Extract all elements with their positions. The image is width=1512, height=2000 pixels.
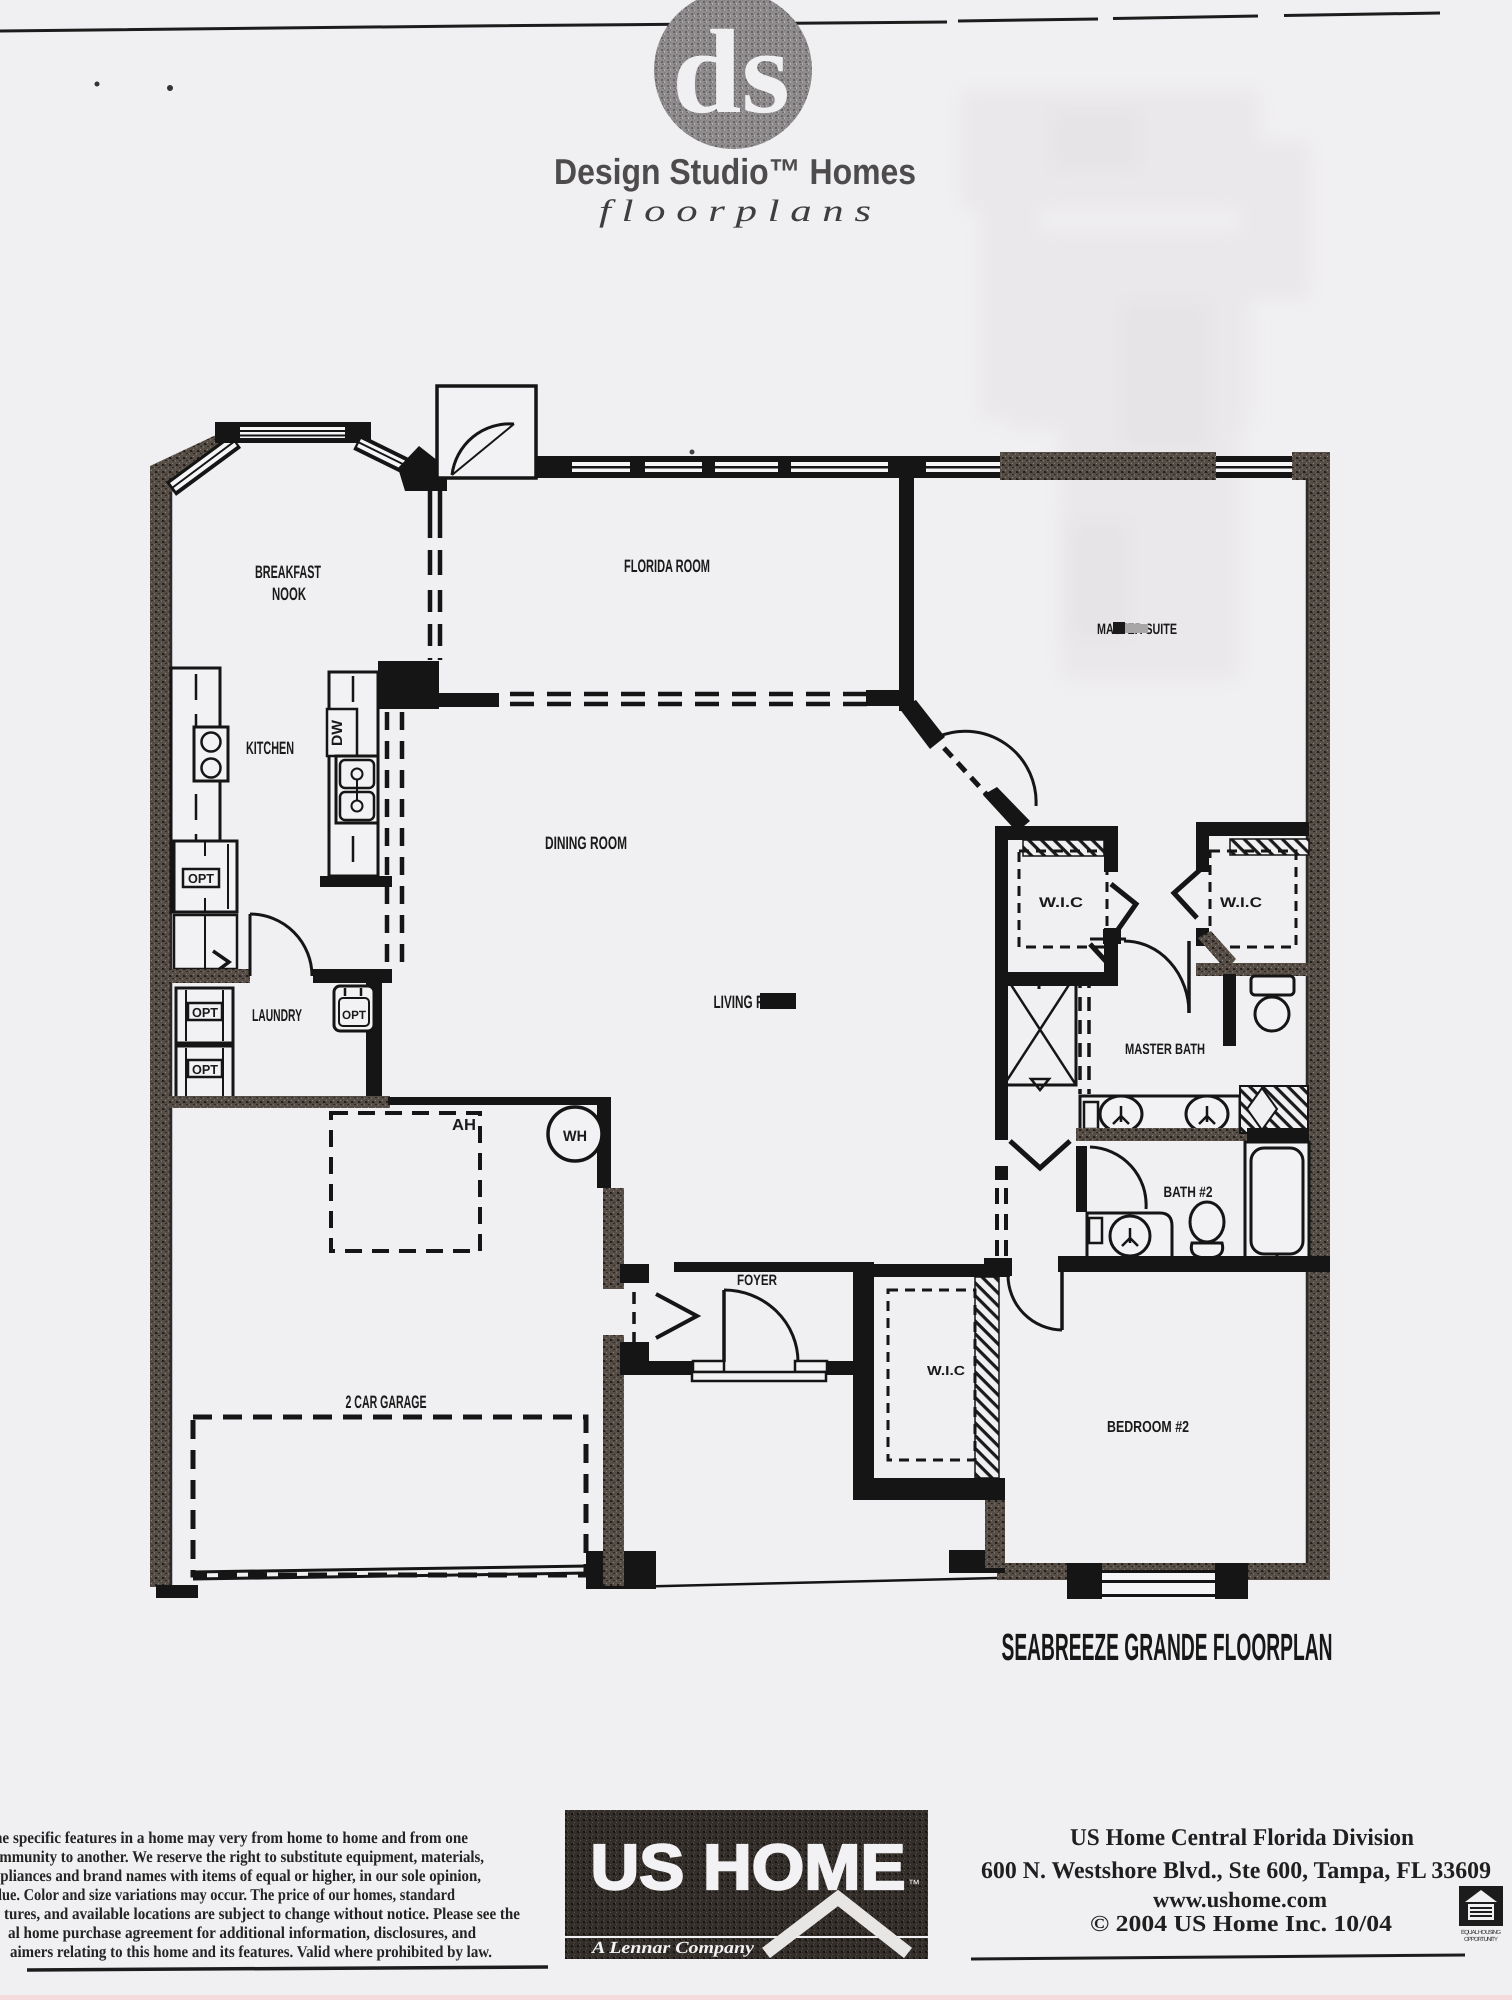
svg-text:MASTER BATH: MASTER BATH [1125,1041,1205,1058]
svg-text:DINING ROOM: DINING ROOM [545,833,627,853]
svg-text:LAUNDRY: LAUNDRY [252,1006,302,1025]
svg-text:US Home Central Florida Divisi: US Home Central Florida Division [1070,1825,1414,1851]
svg-text:© 2004 US Home Inc. 10/04: © 2004 US Home Inc. 10/04 [1090,1911,1393,1936]
svg-text:www.ushome.com: www.ushome.com [1153,1887,1327,1912]
svg-text:f l o o r p l a n s: f l o o r p l a n s [599,193,871,228]
svg-text:ommunity to another. We reserv: ommunity to another. We reserve the righ… [0,1847,484,1866]
svg-text:W.I.C: W.I.C [927,1363,966,1378]
svg-text:600 N. Westshore Blvd., Ste 60: 600 N. Westshore Blvd., Ste 600, Tampa, … [981,1858,1491,1884]
svg-text:BEDROOM #2: BEDROOM #2 [1107,1419,1189,1436]
svg-text:tures, and available locations: tures, and available locations are subje… [4,1904,520,1923]
svg-text:US HOME: US HOME [591,1831,906,1903]
svg-text:lue. Color and size variations: lue. Color and size variations may occur… [0,1885,455,1904]
svg-text:he specific features in a home: he specific features in a home may very … [0,1828,468,1847]
svg-text:NOOK: NOOK [272,584,306,604]
svg-text:SEABREEZE GRANDE FLOORPLAN: SEABREEZE GRANDE FLOORPLAN [1002,1627,1333,1669]
svg-text:2 CAR GARAGE: 2 CAR GARAGE [346,1392,427,1412]
svg-text:A Lennar Company: A Lennar Company [591,1938,755,1957]
svg-text:AH: AH [452,1117,476,1134]
svg-text:OPT: OPT [342,1008,367,1022]
svg-text:OPT: OPT [192,1062,218,1077]
svg-text:KITCHEN: KITCHEN [246,738,294,758]
svg-text:BREAKFAST: BREAKFAST [255,562,321,582]
svg-text:FOYER: FOYER [737,1272,777,1289]
svg-text:aimers relating to this home a: aimers relating to this home and its fea… [10,1942,492,1961]
svg-text:WH: WH [563,1128,587,1145]
svg-text:OPT: OPT [192,1005,218,1020]
svg-text:W.I.C: W.I.C [1039,894,1083,910]
svg-text:BATH #2: BATH #2 [1164,1184,1213,1201]
svg-text:ds: ds [672,5,790,138]
svg-text:OPPORTUNITY: OPPORTUNITY [1464,1936,1498,1943]
svg-text:EQUAL HOUSING: EQUAL HOUSING [1461,1929,1501,1936]
svg-text:ppliances and brand names with: ppliances and brand names with items of … [0,1866,481,1885]
svg-text:FLORIDA ROOM: FLORIDA ROOM [624,556,710,576]
svg-text:W.I.C: W.I.C [1220,894,1262,910]
svg-text:™: ™ [908,1877,920,1891]
svg-text:al home purchase agreement for: al home purchase agreement for additiona… [8,1923,476,1942]
svg-text:DW: DW [329,719,346,746]
svg-text:Design Studio™ Homes: Design Studio™ Homes [554,151,916,192]
svg-text:OPT: OPT [188,871,214,886]
